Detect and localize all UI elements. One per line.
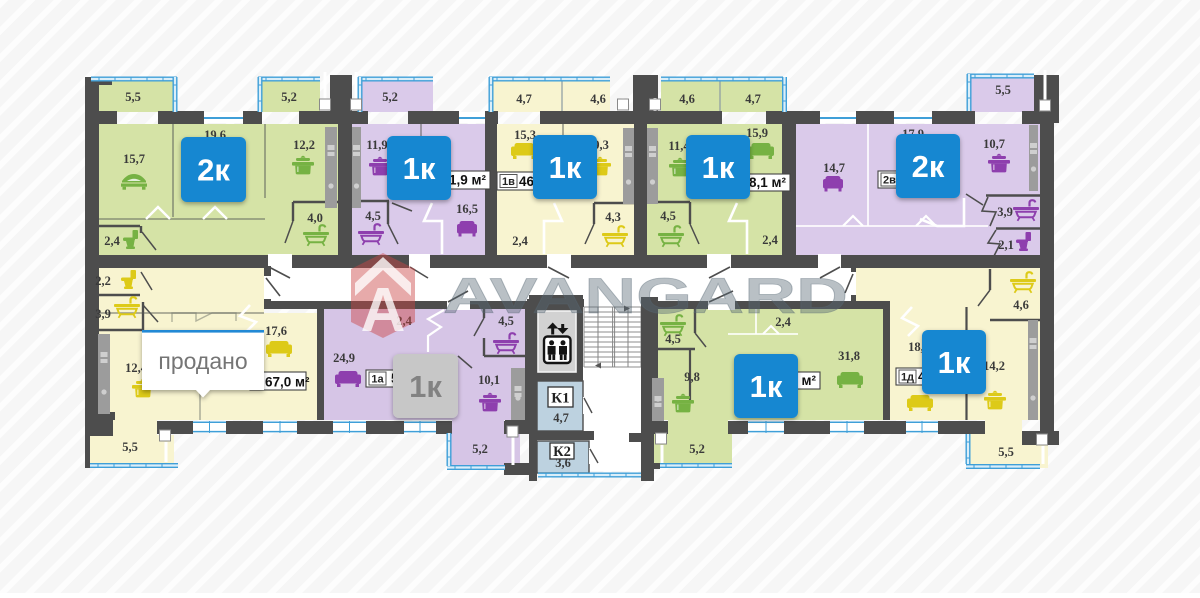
svg-text:2к: 2к — [912, 149, 945, 184]
svg-text:17,6: 17,6 — [265, 324, 287, 338]
svg-text:5,2: 5,2 — [281, 90, 297, 104]
svg-text:67,0 м²: 67,0 м² — [265, 375, 310, 390]
svg-text:4,5: 4,5 — [660, 209, 676, 223]
svg-text:16,5: 16,5 — [456, 202, 478, 216]
svg-text:1к: 1к — [750, 369, 783, 404]
svg-text:5,2: 5,2 — [472, 442, 488, 456]
svg-text:2,4: 2,4 — [104, 234, 120, 248]
svg-text:3,9: 3,9 — [997, 205, 1013, 219]
svg-text:12,2: 12,2 — [293, 138, 315, 152]
svg-text:2в: 2в — [883, 175, 896, 187]
svg-text:2,2: 2,2 — [95, 274, 111, 288]
svg-text:5,5: 5,5 — [122, 440, 138, 454]
svg-text:24,9: 24,9 — [333, 351, 355, 365]
svg-text:31,8: 31,8 — [838, 349, 860, 363]
svg-text:1к: 1к — [938, 345, 971, 380]
svg-text:К1: К1 — [551, 391, 569, 407]
svg-text:15,9: 15,9 — [746, 126, 768, 140]
svg-text:2,1: 2,1 — [998, 238, 1014, 252]
svg-text:5,5: 5,5 — [995, 83, 1011, 97]
svg-text:2к: 2к — [197, 153, 230, 188]
svg-text:1к: 1к — [549, 150, 582, 185]
svg-text:5,5: 5,5 — [125, 90, 141, 104]
svg-text:2,4: 2,4 — [512, 234, 528, 248]
svg-text:1к: 1к — [409, 369, 442, 404]
svg-text:AVANGARD: AVANGARD — [443, 268, 848, 324]
svg-text:10,7: 10,7 — [983, 137, 1005, 151]
svg-text:4,7: 4,7 — [516, 92, 532, 106]
svg-text:1к: 1к — [702, 150, 735, 185]
svg-text:4,7: 4,7 — [745, 92, 761, 106]
svg-text:14,2: 14,2 — [983, 359, 1005, 373]
svg-text:4,7: 4,7 — [553, 411, 569, 425]
svg-text:4,5: 4,5 — [365, 209, 381, 223]
svg-text:5,2: 5,2 — [382, 90, 398, 104]
svg-text:A: A — [361, 276, 406, 345]
svg-text:5,5: 5,5 — [998, 445, 1014, 459]
svg-text:продано: продано — [158, 348, 247, 374]
svg-text:3,9: 3,9 — [95, 307, 111, 321]
svg-text:11,9: 11,9 — [366, 138, 387, 152]
svg-text:5,2: 5,2 — [689, 442, 705, 456]
svg-text:15,3: 15,3 — [514, 128, 536, 142]
svg-text:10,1: 10,1 — [478, 373, 500, 387]
svg-text:1а: 1а — [371, 374, 384, 386]
svg-text:15,7: 15,7 — [123, 152, 145, 166]
svg-text:4,5: 4,5 — [665, 332, 681, 346]
svg-text:4,6: 4,6 — [679, 92, 695, 106]
svg-text:9,8: 9,8 — [684, 370, 700, 384]
svg-text:2,4: 2,4 — [762, 233, 778, 247]
svg-text:К2: К2 — [553, 444, 571, 460]
svg-text:4,6: 4,6 — [590, 92, 606, 106]
svg-text:1д: 1д — [901, 372, 914, 384]
svg-text:14,7: 14,7 — [823, 161, 845, 175]
svg-text:4,3: 4,3 — [605, 210, 621, 224]
svg-text:4,0: 4,0 — [307, 211, 323, 225]
svg-text:1в: 1в — [502, 176, 515, 188]
svg-text:1к: 1к — [403, 151, 436, 186]
svg-text:4,6: 4,6 — [1013, 298, 1029, 312]
